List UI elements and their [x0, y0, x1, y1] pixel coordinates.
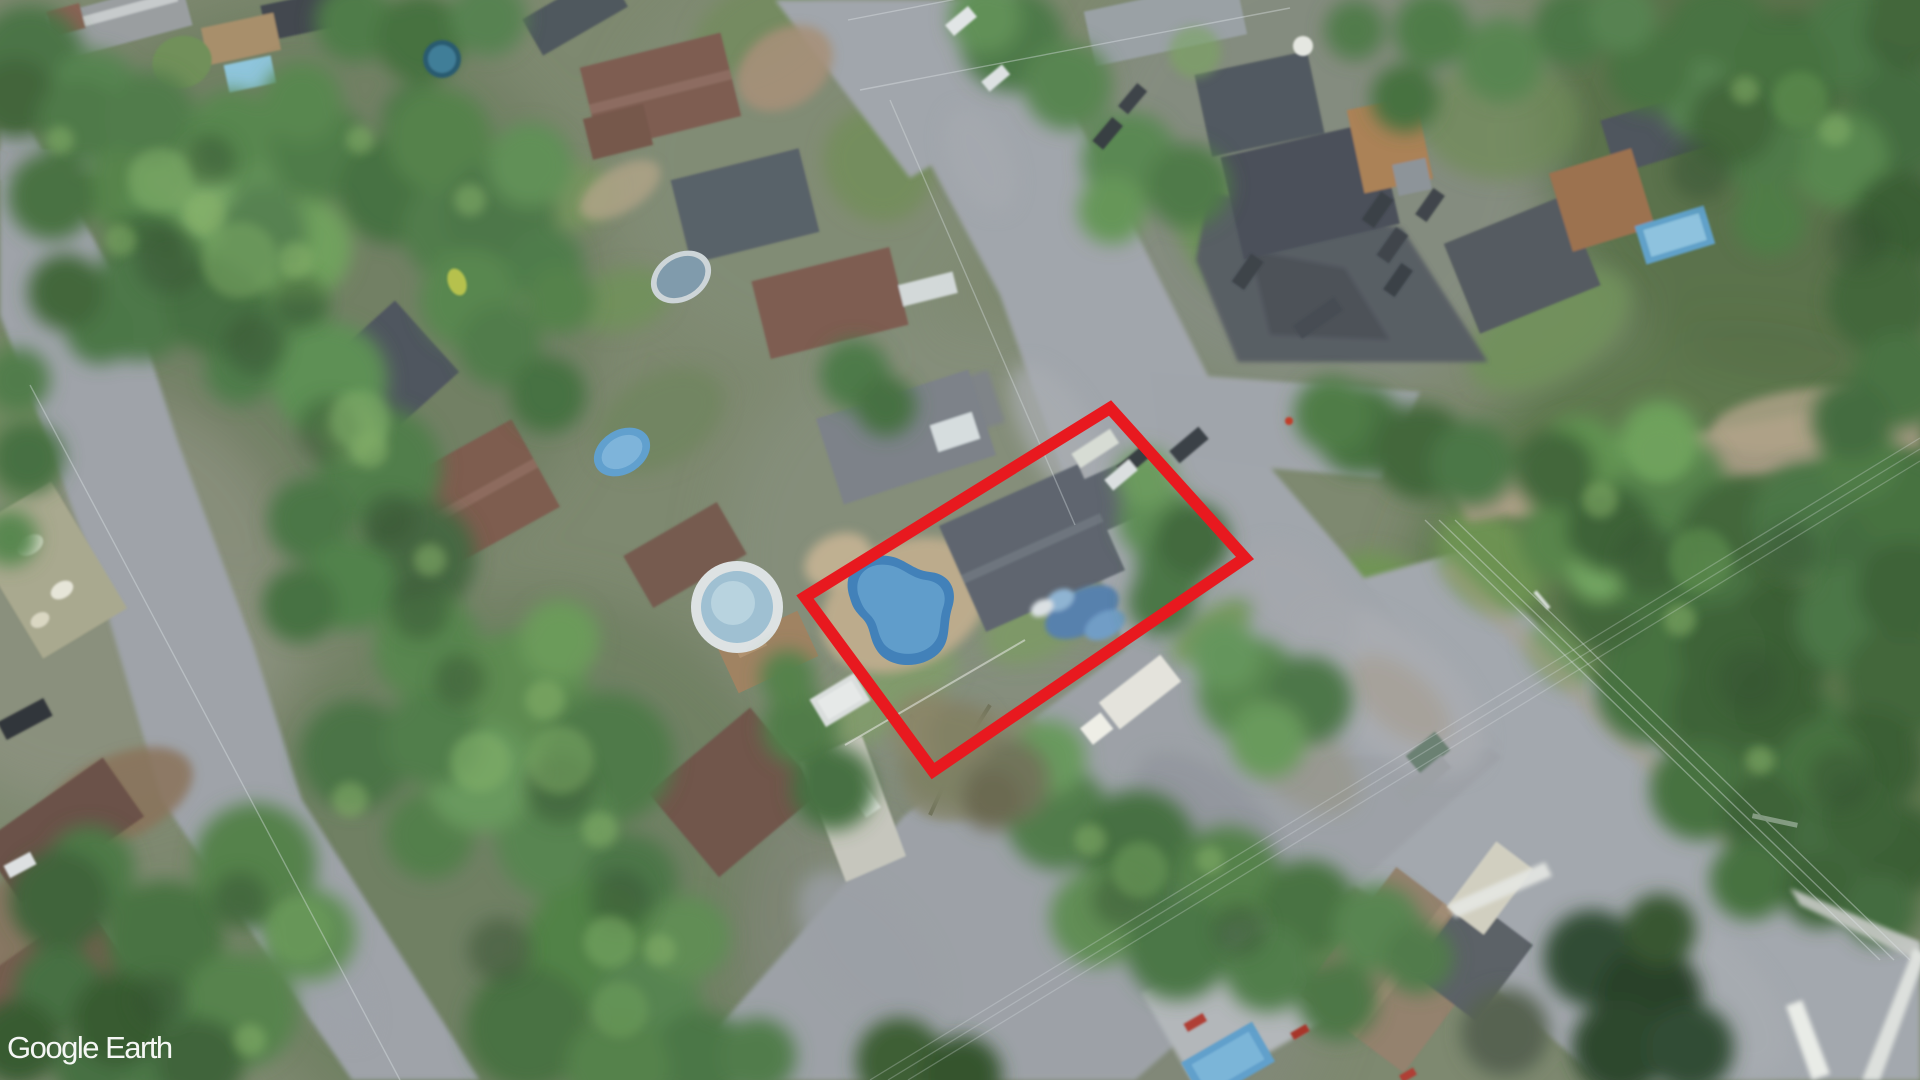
svg-text:Google Earth: Google Earth	[7, 1030, 172, 1065]
